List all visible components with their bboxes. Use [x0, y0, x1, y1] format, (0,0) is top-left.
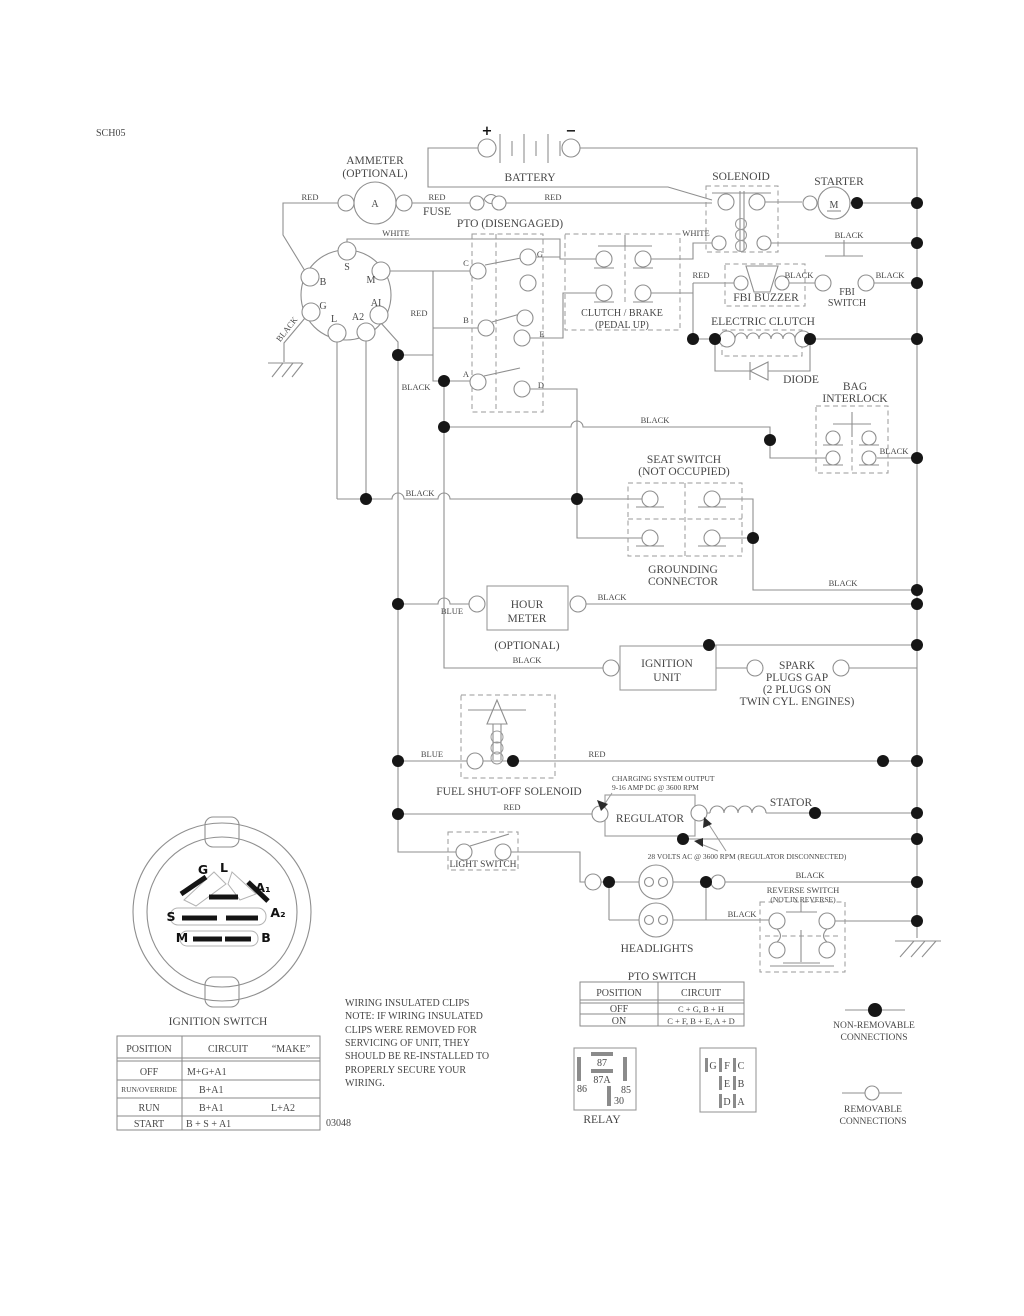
ign-table-row-position: RUN/OVERRIDE — [121, 1085, 177, 1094]
note-line-6: PROPERLY SECURE YOUR — [345, 1065, 466, 1076]
pto-table-row-circuit: C + G, B + H — [678, 1004, 724, 1014]
hour-meter-component: HOUR METER (OPTIONAL) — [469, 586, 586, 652]
relay-pin-87: 87 — [597, 1058, 607, 1069]
wire-label-black: BLACK — [728, 909, 758, 919]
fuel-solenoid-component: FUEL SHUT-OFF SOLENOID — [436, 695, 581, 798]
ign-table-row-position: START — [134, 1119, 164, 1130]
wire-label-black: BLACK — [402, 382, 432, 392]
battery-plus-label: + — [482, 124, 493, 139]
key-terminal-s: S — [344, 262, 350, 273]
connector-terminal-s: S — [166, 909, 175, 924]
hour-meter-optional-label: (OPTIONAL) — [494, 640, 559, 652]
pto-contact-a: A — [463, 369, 470, 379]
fuse-label: FUSE — [423, 206, 451, 218]
connector-terminal-l: L — [220, 860, 228, 875]
ammeter-label: AMMETER — [346, 155, 404, 167]
wiring-note: WIRING INSULATED CLIPS NOTE: IF WIRING I… — [345, 998, 489, 1089]
spark-label-2: PLUGS GAP — [766, 672, 828, 684]
volts-note-label: 28 VOLTS AC @ 3600 RPM (REGULATOR DISCON… — [648, 852, 847, 861]
note-line-1: WIRING INSULATED CLIPS — [345, 998, 469, 1009]
pto-table-row-circuit: C + F, B + E, A + D — [667, 1016, 735, 1026]
battery-minus-label: − — [566, 124, 577, 139]
pto-contact-e: E — [539, 329, 544, 339]
pto-table-header-circuit: CIRCUIT — [681, 988, 721, 999]
fbi-switch-component: FBI SWITCH — [815, 240, 874, 309]
fbi-switch-label-1: FBI — [839, 287, 855, 298]
spark-label-4: TWIN CYL. ENGINES) — [740, 696, 855, 708]
bag-interlock-label-1: BAG — [843, 381, 867, 393]
wire-label-black: BLACK — [876, 270, 906, 280]
diode-component: DIODE — [750, 362, 819, 386]
electric-clutch-component: ELECTRIC CLUTCH — [711, 316, 815, 356]
fbi-switch-label-2: SWITCH — [828, 298, 866, 309]
relay-pin-30: 30 — [614, 1096, 624, 1107]
note-line-2: NOTE: IF WIRING INSULATED — [345, 1011, 483, 1022]
ignition-unit-label-2: UNIT — [653, 672, 680, 684]
ammeter-component: AMMETER (OPTIONAL) A — [338, 155, 412, 224]
ign-table-row-circuit: B+A1 — [199, 1103, 224, 1114]
plug-pin-a: A — [737, 1097, 745, 1108]
headlights-label: HEADLIGHTS — [621, 943, 694, 955]
pto-contact-b: B — [463, 315, 469, 325]
stator-component: STATOR — [710, 797, 812, 813]
wire-label-black: BLACK — [513, 655, 543, 665]
key-terminal-a2: A2 — [352, 312, 364, 323]
bag-interlock-label-2: INTERLOCK — [822, 393, 888, 405]
ground-symbol-left — [268, 363, 303, 377]
charging-output-label-2: 9-16 AMP DC @ 3600 RPM — [612, 783, 699, 792]
plug-pin-b: B — [738, 1079, 745, 1090]
wire-label-black: BLACK — [835, 230, 865, 240]
light-switch-label: LIGHT SWITCH — [449, 860, 516, 870]
ignition-unit-component: IGNITION UNIT — [603, 646, 716, 690]
bag-interlock-component: BAG INTERLOCK — [816, 381, 888, 473]
note-line-7: WIRING. — [345, 1078, 385, 1089]
ign-table-row-position: OFF — [140, 1067, 159, 1078]
light-switch-component: LIGHT SWITCH — [448, 832, 518, 870]
key-terminal-b: B — [320, 277, 327, 288]
plug-pin-g: G — [709, 1061, 716, 1072]
legend-non-removable-1: NON-REMOVABLE — [833, 1021, 915, 1031]
pto-contact-c: C — [463, 258, 469, 268]
ground-symbol-right — [895, 941, 941, 957]
plug-pin-e: E — [724, 1079, 730, 1090]
battery-label: BATTERY — [504, 172, 556, 184]
starter-label: STARTER — [814, 176, 864, 188]
plug-pin-c: C — [738, 1061, 745, 1072]
wire-label-black: BLACK — [785, 270, 815, 280]
drawing-number: 03048 — [326, 1118, 351, 1129]
solenoid-component: SOLENOID — [706, 171, 778, 252]
plug-pin-f: F — [724, 1061, 730, 1072]
connections-legend: NON-REMOVABLE CONNECTIONS REMOVABLE CONN… — [833, 1003, 915, 1127]
seat-switch-component: SEAT SWITCH (NOT OCCUPIED) GROUNDING CON… — [628, 454, 742, 588]
note-line-3: CLIPS WERE REMOVED FOR — [345, 1025, 477, 1036]
ammeter-symbol: A — [371, 199, 379, 210]
relay-component: 87 87A 86 85 30 RELAY — [574, 1048, 636, 1126]
wire-label-red: RED — [429, 192, 446, 202]
regulator-label: REGULATOR — [616, 813, 684, 825]
sheet-code: SCH05 — [96, 128, 125, 139]
key-switch-component: S M B G AI L A2 — [301, 242, 391, 342]
charging-output-label-1: CHARGING SYSTEM OUTPUT — [612, 774, 715, 783]
key-terminal-m: M — [367, 275, 376, 286]
ign-table-row-circuit: B+A1 — [199, 1085, 224, 1096]
plug-pin-d: D — [723, 1097, 730, 1108]
ign-table-header-circuit: CIRCUIT — [208, 1044, 248, 1055]
starter-symbol: M — [830, 200, 839, 211]
grounding-connector-label-1: GROUNDING — [648, 564, 718, 576]
ign-table-row-circuit: B + S + A1 — [186, 1119, 231, 1130]
wire-label-black: BLACK — [796, 870, 826, 880]
fuel-solenoid-label: FUEL SHUT-OFF SOLENOID — [436, 786, 581, 798]
wire-label-white: WHITE — [682, 228, 709, 238]
ammeter-optional-label: (OPTIONAL) — [342, 168, 407, 180]
reverse-switch-label-2: (NOT IN REVERSE) — [770, 895, 836, 904]
relay-label: RELAY — [583, 1114, 621, 1126]
wire-label-blue: BLUE — [441, 606, 463, 616]
ign-table-row-position: RUN — [138, 1103, 159, 1114]
spark-plugs-component: SPARK PLUGS GAP (2 PLUGS ON TWIN CYL. EN… — [740, 660, 855, 708]
seat-switch-label-2: (NOT OCCUPIED) — [638, 466, 730, 478]
wire-label-blue: BLUE — [421, 749, 443, 759]
clutch-brake-label: CLUTCH / BRAKE — [581, 308, 663, 319]
electric-clutch-label: ELECTRIC CLUTCH — [711, 316, 815, 328]
regulator-component: REGULATOR CHARGING SYSTEM OUTPUT 9-16 AM… — [592, 774, 847, 861]
wiring-schematic: + − BATTERY AMMETER (OPTIONAL) A FUSE S … — [0, 0, 1024, 1316]
key-terminal-ai: AI — [371, 298, 382, 309]
wire-label-red: RED — [589, 749, 606, 759]
wire-label-red: RED — [302, 192, 319, 202]
pto-disengaged-label: PTO (DISENGAGED) — [457, 218, 563, 230]
spark-label-1: SPARK — [779, 660, 816, 672]
connector-terminal-g: G — [198, 862, 208, 877]
stator-label: STATOR — [770, 797, 813, 809]
connector-terminal-b: B — [261, 930, 271, 945]
harness-connector-block: G F C E B D A — [700, 1048, 756, 1112]
relay-pin-87a: 87A — [593, 1075, 611, 1086]
clutch-brake-component: CLUTCH / BRAKE (PEDAL UP) — [565, 234, 680, 331]
ignition-switch-connector: G L A₁ A₂ S M B IGNITION SWITCH — [133, 817, 311, 1028]
connector-terminal-a2: A₂ — [270, 905, 285, 920]
clutch-brake-sub-label: (PEDAL UP) — [595, 320, 649, 331]
seat-switch-label-1: SEAT SWITCH — [647, 454, 721, 466]
key-terminal-l: L — [331, 314, 337, 325]
relay-pin-85: 85 — [621, 1085, 631, 1096]
ign-table-row-circuit: M+G+A1 — [187, 1067, 227, 1078]
wire-label-red: RED — [411, 308, 428, 318]
key-terminal-g: G — [319, 301, 326, 312]
legend-removable-2: CONNECTIONS — [839, 1117, 906, 1127]
reverse-switch-label-1: REVERSE SWITCH — [767, 885, 840, 895]
note-line-4: SERVICING OF UNIT, THEY — [345, 1038, 470, 1049]
pto-table-row-position: OFF — [610, 1004, 629, 1015]
pto-table-row-position: ON — [612, 1016, 626, 1027]
ign-table-row-make: L+A2 — [271, 1103, 295, 1114]
connector-terminal-m: M — [176, 930, 188, 945]
wire-label-black: BLACK — [598, 592, 628, 602]
pto-contact-g: G — [537, 249, 543, 259]
relay-pin-86: 86 — [577, 1084, 587, 1095]
legend-non-removable-2: CONNECTIONS — [840, 1033, 907, 1043]
ignition-switch-title: IGNITION SWITCH — [169, 1016, 268, 1028]
spark-label-3: (2 PLUGS ON — [763, 684, 832, 696]
reverse-switch-component: REVERSE SWITCH (NOT IN REVERSE) — [760, 885, 845, 972]
battery-component: + − BATTERY — [478, 124, 580, 184]
ignition-unit-label-1: IGNITION — [641, 658, 693, 670]
grounding-connector-label-2: CONNECTOR — [648, 576, 718, 588]
pto-table-title: PTO SWITCH — [628, 971, 696, 983]
pto-table-header-position: POSITION — [596, 988, 642, 999]
solenoid-label: SOLENOID — [712, 171, 770, 183]
wire-label-red: RED — [693, 270, 710, 280]
ign-table-header-position: POSITION — [126, 1044, 172, 1055]
pto-switch-table: PTO SWITCH POSITION CIRCUIT OFF C + G, B… — [580, 971, 744, 1027]
ignition-switch-table: POSITION CIRCUIT “MAKE” OFF M+G+A1 RUN/O… — [117, 1036, 351, 1130]
wire-label-black: BLACK — [641, 415, 671, 425]
hour-meter-label-1: HOUR — [511, 599, 544, 611]
pto-contact-d: D — [538, 380, 544, 390]
wire-label-red: RED — [545, 192, 562, 202]
connector-terminal-a1: A₁ — [255, 880, 270, 895]
ign-table-header-make: “MAKE” — [272, 1044, 310, 1055]
diode-label: DIODE — [783, 374, 819, 386]
schematic-page: + − BATTERY AMMETER (OPTIONAL) A FUSE S … — [0, 0, 1024, 1316]
fbi-buzzer-label: FBI BUZZER — [733, 292, 799, 304]
hour-meter-label-2: METER — [508, 613, 547, 625]
pto-switch-component: C G B E A D PTO (DISENGAGED) — [457, 218, 563, 412]
wire-label-white: WHITE — [382, 228, 409, 238]
wire-label-black: BLACK — [880, 446, 910, 456]
wire-label-black: BLACK — [829, 578, 859, 588]
note-line-5: SHOULD BE RE-INSTALLED TO — [345, 1051, 489, 1062]
legend-removable-1: REMOVABLE — [844, 1105, 902, 1115]
wire-label-black: BLACK — [406, 488, 436, 498]
wire-label-red: RED — [504, 802, 521, 812]
